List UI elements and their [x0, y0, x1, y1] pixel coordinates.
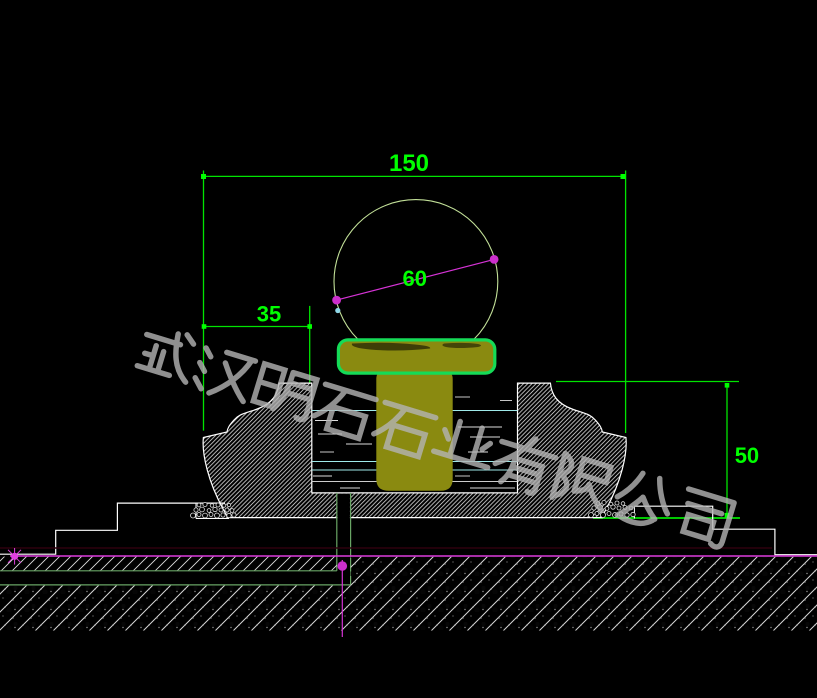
svg-text:50: 50	[735, 443, 759, 468]
svg-text:35: 35	[257, 302, 281, 327]
svg-text:150: 150	[389, 150, 429, 177]
svg-text:60: 60	[403, 266, 427, 291]
